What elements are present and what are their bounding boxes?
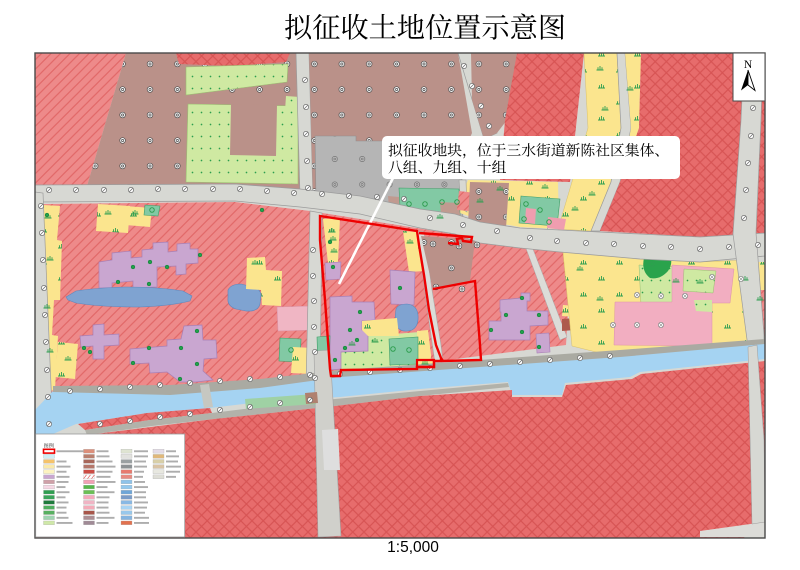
svg-text:N: N	[744, 59, 753, 71]
svg-text:1:5,000: 1:5,000	[387, 539, 439, 556]
